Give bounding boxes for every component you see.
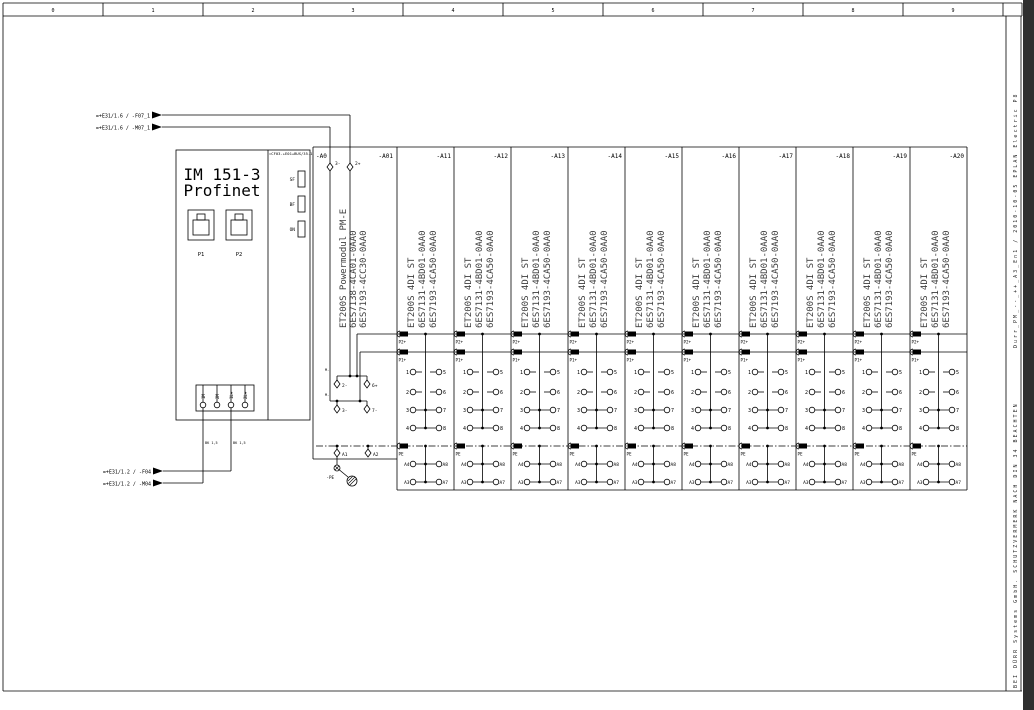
input-terminal-label: 6 bbox=[842, 390, 845, 396]
pm-terminal bbox=[334, 405, 340, 413]
aux-terminal-label: A3 bbox=[575, 480, 581, 486]
module-tag: -A16 bbox=[722, 153, 737, 160]
aux-terminal-label: A8 bbox=[899, 462, 905, 468]
module-tag: -A01 bbox=[379, 153, 394, 160]
input-terminal-label: 8 bbox=[728, 426, 731, 432]
reference-label: =+E31/1.6 / -F07_1 bbox=[96, 114, 150, 120]
input-terminal-label: 2 bbox=[406, 390, 409, 396]
aux-terminal-label: A7 bbox=[557, 480, 563, 486]
ruler-label: 9 bbox=[951, 8, 954, 14]
input-terminal-label: 2 bbox=[919, 390, 922, 396]
module-tag: -A13 bbox=[551, 153, 566, 160]
aux-terminal-label: A3 bbox=[860, 480, 866, 486]
schematic-canvas: 0 1 2 3 4 5 6 7 8 9 Durr_PM_--_++_A3_En1… bbox=[0, 0, 1034, 710]
protection-notice-text: BEI DÜRR Systems GmbH. SCHUTZVERMERK NAC… bbox=[1012, 402, 1019, 688]
aux-terminal-label: A8 bbox=[728, 462, 734, 468]
pm-terminal bbox=[364, 405, 370, 413]
terminal-label: A1 bbox=[342, 452, 348, 458]
input-terminal-label: 3 bbox=[406, 408, 409, 414]
module-tag: -A18 bbox=[836, 153, 851, 160]
bus-label: P1+ bbox=[513, 358, 521, 363]
aux-terminal-label: A7 bbox=[899, 480, 905, 486]
input-terminal-label: 5 bbox=[443, 370, 446, 376]
reference-label: =+E31/1.6 / -M07_1 bbox=[96, 126, 150, 132]
module-description: ET200S 4DI ST bbox=[407, 257, 417, 328]
input-terminal-label: 3 bbox=[805, 408, 808, 414]
led-label: ON bbox=[290, 227, 296, 233]
input-terminal-label: 1 bbox=[577, 370, 580, 376]
terminal-label: 2- bbox=[342, 383, 347, 389]
potential-label: M- bbox=[325, 393, 329, 397]
terminal-label: 2+ bbox=[355, 161, 361, 167]
module-description: ET200S 4DI ST bbox=[635, 257, 645, 328]
module-description: 6ES7131-4BD01-0AA0 bbox=[760, 230, 770, 328]
bus-label: P1+ bbox=[627, 358, 635, 363]
pm-terminal bbox=[334, 449, 340, 457]
bus-label: P2+ bbox=[513, 340, 521, 345]
profinet-port-p1: P1 bbox=[188, 210, 214, 258]
input-terminal-label: 6 bbox=[728, 390, 731, 396]
aux-terminal-label: A7 bbox=[671, 480, 677, 486]
bus-label: P1+ bbox=[456, 358, 464, 363]
module-description: 6ES7193-4CA50-0AA0 bbox=[657, 230, 667, 328]
aux-terminal-label: A4 bbox=[518, 462, 524, 468]
schematic-sheet: 0 1 2 3 4 5 6 7 8 9 Durr_PM_--_++_A3_En1… bbox=[0, 0, 1034, 710]
di-column-11: -A11ET200S 4DI ST6ES7131-4BD01-0AA06ES71… bbox=[397, 147, 451, 490]
terminal-label: 2L+ bbox=[243, 391, 248, 399]
input-terminal-label: 3 bbox=[463, 408, 466, 414]
input-terminal-label: 5 bbox=[557, 370, 560, 376]
bus-label: PE bbox=[627, 452, 633, 457]
terminal-label: 6+ bbox=[372, 383, 378, 389]
plot-stamp-text: Durr_PM_--_++_A3_En1 / 2010-10-05 EPLAN … bbox=[1013, 92, 1019, 348]
bus-label: P2+ bbox=[399, 340, 407, 345]
terminal-label: 7- bbox=[372, 408, 377, 414]
bus-label: PE bbox=[684, 452, 690, 457]
input-terminal-label: 2 bbox=[520, 390, 523, 396]
di-column-20: -A20ET200S 4DI ST6ES7131-4BD01-0AA06ES71… bbox=[910, 147, 964, 490]
input-terminal-label: 4 bbox=[862, 426, 865, 432]
module-description: 6ES7193-4CA50-0AA0 bbox=[942, 230, 952, 328]
input-terminal-label: 2 bbox=[862, 390, 865, 396]
input-terminal-label: 7 bbox=[671, 408, 674, 414]
bus-label: P2+ bbox=[570, 340, 578, 345]
pm-terminal bbox=[334, 380, 340, 388]
module-tag: -A20 bbox=[950, 153, 965, 160]
aux-terminal-label: A4 bbox=[746, 462, 752, 468]
module-description: ET200S 4DI ST bbox=[692, 257, 702, 328]
input-terminal-label: 3 bbox=[919, 408, 922, 414]
bus-label: P1+ bbox=[684, 358, 692, 363]
sheet-frame: 0 1 2 3 4 5 6 7 8 9 bbox=[3, 0, 1034, 710]
module-description: 6ES7193-4CA50-0AA0 bbox=[429, 230, 439, 328]
module-description: 6ES7131-4BD01-0AA0 bbox=[931, 230, 941, 328]
aux-terminal-label: A4 bbox=[632, 462, 638, 468]
aux-terminal-label: A3 bbox=[917, 480, 923, 486]
input-terminal-label: 3 bbox=[862, 408, 865, 414]
module-description: 6ES7193-4CC30-0AA0 bbox=[359, 230, 369, 328]
module-description: ET200S 4DI ST bbox=[920, 257, 930, 328]
bus-label: P2+ bbox=[798, 340, 806, 345]
aux-terminal-label: A4 bbox=[803, 462, 809, 468]
status-leds: SF BF ON bbox=[290, 171, 305, 237]
module-tag: -A14 bbox=[608, 153, 623, 160]
module-description: ET200S 4DI ST bbox=[521, 257, 531, 328]
input-terminal-label: 4 bbox=[520, 426, 523, 432]
input-terminal-label: 3 bbox=[748, 408, 751, 414]
input-terminal-label: 3 bbox=[577, 408, 580, 414]
input-terminal-label: 8 bbox=[557, 426, 560, 432]
bus-label: P2+ bbox=[741, 340, 749, 345]
arrow-icon bbox=[152, 124, 162, 131]
input-terminal-label: 5 bbox=[614, 370, 617, 376]
aux-terminal-label: A7 bbox=[785, 480, 791, 486]
input-terminal-label: 8 bbox=[842, 426, 845, 432]
input-terminal-label: 2 bbox=[577, 390, 580, 396]
module-description: 6ES7193-4CA50-0AA0 bbox=[828, 230, 838, 328]
input-terminal-label: 2 bbox=[634, 390, 637, 396]
aux-terminal-label: A7 bbox=[728, 480, 734, 486]
reference-arrows-bottom: =+E31/1.2 / -F04 =+E31/1.2 / -M04 bbox=[103, 468, 231, 488]
bus-label: PE bbox=[855, 452, 861, 457]
module-tag: -A15 bbox=[665, 153, 680, 160]
bus-reference-label: =CF03-+E01+BUS/35.1 bbox=[269, 151, 313, 156]
arrow-icon bbox=[152, 112, 162, 119]
ruler-label: 4 bbox=[451, 8, 454, 14]
input-terminal-label: 5 bbox=[956, 370, 959, 376]
power-terminal-block: 1M 2M 1L+ 2L+ bbox=[196, 385, 254, 411]
input-terminal-label: 3 bbox=[520, 408, 523, 414]
led-label: BF bbox=[290, 202, 296, 208]
input-terminal-label: 1 bbox=[520, 370, 523, 376]
module-description: 6ES7193-4CA50-0AA0 bbox=[600, 230, 610, 328]
input-terminal-label: 4 bbox=[691, 426, 694, 432]
input-terminal-label: 5 bbox=[899, 370, 902, 376]
ruler-label: 6 bbox=[651, 8, 654, 14]
input-terminal-label: 6 bbox=[785, 390, 788, 396]
im151-module: IM 151-3 Profinet P1 P2 =CF03-+E01+BUS/3… bbox=[176, 150, 313, 483]
di-column-19: -A19ET200S 4DI ST6ES7131-4BD01-0AA06ES71… bbox=[853, 147, 907, 490]
module-description: 6ES7131-4BD01-0AA0 bbox=[418, 230, 428, 328]
input-terminal-label: 2 bbox=[691, 390, 694, 396]
terminal-label: 3- bbox=[342, 408, 347, 414]
bus-label: PE bbox=[399, 452, 405, 457]
input-terminal-label: 6 bbox=[443, 390, 446, 396]
module-tag: -A12 bbox=[494, 153, 509, 160]
bus-label: PE bbox=[741, 452, 747, 457]
im-title: Profinet bbox=[183, 181, 260, 200]
input-terminal-label: 4 bbox=[406, 426, 409, 432]
ruler-label: 1 bbox=[151, 8, 154, 14]
input-terminal-label: 3 bbox=[634, 408, 637, 414]
pm-terminal bbox=[364, 380, 370, 388]
aux-terminal-label: A8 bbox=[671, 462, 677, 468]
terminal-label: 1L+ bbox=[229, 391, 234, 399]
input-terminal-label: 5 bbox=[785, 370, 788, 376]
aux-terminal-label: A7 bbox=[500, 480, 506, 486]
aux-terminal-label: A3 bbox=[404, 480, 410, 486]
di-column-17: -A17ET200S 4DI ST6ES7131-4BD01-0AA06ES71… bbox=[739, 147, 793, 490]
module-description: ET200S 4DI ST bbox=[578, 257, 588, 328]
aux-terminal-label: A7 bbox=[956, 480, 962, 486]
di-column-16: -A16ET200S 4DI ST6ES7131-4BD01-0AA06ES71… bbox=[682, 147, 736, 490]
input-terminal-label: 8 bbox=[500, 426, 503, 432]
input-terminal-label: 5 bbox=[842, 370, 845, 376]
bus-label: P1+ bbox=[399, 358, 407, 363]
input-terminal-label: 1 bbox=[634, 370, 637, 376]
input-terminal-label: 4 bbox=[634, 426, 637, 432]
input-terminal-label: 5 bbox=[671, 370, 674, 376]
module-description: 6ES7138-4CA01-0AA0 bbox=[349, 230, 359, 328]
di-column-15: -A15ET200S 4DI ST6ES7131-4BD01-0AA06ES71… bbox=[625, 147, 679, 490]
reference-label: =+E31/1.2 / -M04 bbox=[103, 482, 151, 488]
module-description: ET200S 4DI ST bbox=[749, 257, 759, 328]
input-terminal-label: 8 bbox=[956, 426, 959, 432]
module-tag: -A17 bbox=[779, 153, 794, 160]
di-column-14: -A14ET200S 4DI ST6ES7131-4BD01-0AA06ES71… bbox=[568, 147, 622, 490]
arrow-icon bbox=[153, 480, 163, 487]
pm-terminal bbox=[365, 449, 371, 457]
potential-label: M- bbox=[325, 368, 329, 372]
input-terminal-label: 1 bbox=[748, 370, 751, 376]
di-column-18: -A18ET200S 4DI ST6ES7131-4BD01-0AA06ES71… bbox=[796, 147, 850, 490]
input-terminal-label: 4 bbox=[805, 426, 808, 432]
input-terminal-label: 1 bbox=[805, 370, 808, 376]
bus-label: P1+ bbox=[570, 358, 578, 363]
input-terminal-label: 7 bbox=[614, 408, 617, 414]
aux-terminal-label: A8 bbox=[500, 462, 506, 468]
ruler-label: 5 bbox=[551, 8, 554, 14]
module-description: 6ES7131-4BD01-0AA0 bbox=[703, 230, 713, 328]
bus-label: P1+ bbox=[912, 358, 920, 363]
aux-terminal-label: A8 bbox=[557, 462, 563, 468]
module-description: ET200S 4DI ST bbox=[806, 257, 816, 328]
input-terminal-label: 3 bbox=[691, 408, 694, 414]
bus-label: P2+ bbox=[912, 340, 920, 345]
module-tag: -A19 bbox=[893, 153, 908, 160]
aux-terminal-label: A3 bbox=[803, 480, 809, 486]
aux-terminal-label: A8 bbox=[614, 462, 620, 468]
arrow-icon bbox=[153, 468, 163, 475]
aux-terminal-label: A3 bbox=[746, 480, 752, 486]
aux-terminal-label: A4 bbox=[404, 462, 410, 468]
module-description: ET200S 4DI ST bbox=[464, 257, 474, 328]
di-column-13: -A13ET200S 4DI ST6ES7131-4BD01-0AA06ES71… bbox=[511, 147, 565, 490]
aux-terminal-label: A3 bbox=[689, 480, 695, 486]
input-terminal-label: 8 bbox=[614, 426, 617, 432]
input-terminal-label: 6 bbox=[956, 390, 959, 396]
module-description: 6ES7193-4CA50-0AA0 bbox=[885, 230, 895, 328]
terminal-label: 2M bbox=[215, 394, 220, 399]
profinet-port-p2: P2 bbox=[226, 210, 252, 258]
input-terminal-label: 6 bbox=[500, 390, 503, 396]
aux-terminal-label: A7 bbox=[842, 480, 848, 486]
module-description: 6ES7193-4CA50-0AA0 bbox=[714, 230, 724, 328]
input-terminal-label: 7 bbox=[557, 408, 560, 414]
input-terminal-label: 4 bbox=[919, 426, 922, 432]
interruption-terminal bbox=[347, 163, 353, 171]
aux-terminal-label: A4 bbox=[917, 462, 923, 468]
terminal-label: A2 bbox=[373, 452, 379, 458]
bus-label: P2+ bbox=[456, 340, 464, 345]
input-terminal-label: 5 bbox=[728, 370, 731, 376]
input-terminal-label: 6 bbox=[671, 390, 674, 396]
aux-terminal-label: A3 bbox=[518, 480, 524, 486]
interruption-terminal bbox=[327, 163, 333, 171]
di-columns: -A11ET200S 4DI ST6ES7131-4BD01-0AA06ES71… bbox=[397, 147, 964, 490]
bus-label: PE bbox=[798, 452, 804, 457]
module-description: 6ES7131-4BD01-0AA0 bbox=[532, 230, 542, 328]
bus-label: PE bbox=[513, 452, 519, 457]
input-terminal-label: 7 bbox=[956, 408, 959, 414]
input-terminal-label: 6 bbox=[899, 390, 902, 396]
module-description: 6ES7193-4CA50-0AA0 bbox=[543, 230, 553, 328]
bus-label: PE bbox=[912, 452, 918, 457]
earth-ground-symbol: -PE bbox=[326, 457, 357, 486]
ruler-label: 3 bbox=[351, 8, 354, 14]
bus-label: PE bbox=[456, 452, 462, 457]
module-description: 6ES7131-4BD01-0AA0 bbox=[475, 230, 485, 328]
input-terminal-label: 1 bbox=[862, 370, 865, 376]
module-description: ET200S Powermodul PM-E bbox=[339, 209, 349, 328]
bus-label: P1+ bbox=[855, 358, 863, 363]
input-terminal-label: 7 bbox=[728, 408, 731, 414]
aux-terminal-label: A8 bbox=[956, 462, 962, 468]
input-terminal-label: 8 bbox=[785, 426, 788, 432]
ruler-label: 8 bbox=[851, 8, 854, 14]
input-terminal-label: 8 bbox=[671, 426, 674, 432]
bus-label: P2+ bbox=[855, 340, 863, 345]
port-label: P2 bbox=[236, 252, 243, 258]
aux-terminal-label: A4 bbox=[575, 462, 581, 468]
input-terminal-label: 5 bbox=[500, 370, 503, 376]
input-terminal-label: 7 bbox=[899, 408, 902, 414]
input-terminal-label: 6 bbox=[614, 390, 617, 396]
aux-terminal-label: A7 bbox=[614, 480, 620, 486]
module-description: 6ES7131-4BD01-0AA0 bbox=[817, 230, 827, 328]
module-description: 6ES7131-4BD01-0AA0 bbox=[589, 230, 599, 328]
reference-label: =+E31/1.2 / -F04 bbox=[103, 470, 151, 476]
input-terminal-label: 6 bbox=[557, 390, 560, 396]
input-terminal-label: 7 bbox=[443, 408, 446, 414]
input-terminal-label: 2 bbox=[748, 390, 751, 396]
input-terminal-label: 1 bbox=[691, 370, 694, 376]
wire-label: BK 1,5 bbox=[233, 441, 246, 445]
aux-terminal-label: A7 bbox=[443, 480, 449, 486]
title-block-sidebar: Durr_PM_--_++_A3_En1 / 2010-10-05 EPLAN … bbox=[1006, 16, 1021, 691]
module-description: 6ES7131-4BD01-0AA0 bbox=[874, 230, 884, 328]
aux-terminal-label: A4 bbox=[689, 462, 695, 468]
module-tag: -A0 bbox=[316, 153, 327, 160]
wire-label: BK 1,5 bbox=[205, 441, 218, 445]
aux-terminal-label: A8 bbox=[785, 462, 791, 468]
aux-terminal-label: A8 bbox=[443, 462, 449, 468]
ruler-label: 0 bbox=[51, 8, 54, 14]
bus-label: P1+ bbox=[741, 358, 749, 363]
bus-label: P2+ bbox=[627, 340, 635, 345]
bus-label: PE bbox=[570, 452, 576, 457]
input-terminal-label: 4 bbox=[463, 426, 466, 432]
input-terminal-label: 2 bbox=[805, 390, 808, 396]
input-terminal-label: 2 bbox=[463, 390, 466, 396]
module-description: ET200S 4DI ST bbox=[863, 257, 873, 328]
module-description: 6ES7193-4CA50-0AA0 bbox=[486, 230, 496, 328]
di-column-12: -A12ET200S 4DI ST6ES7131-4BD01-0AA06ES71… bbox=[454, 147, 508, 490]
input-terminal-label: 8 bbox=[899, 426, 902, 432]
page-edge-bar bbox=[1023, 0, 1034, 710]
terminal-label: 1M bbox=[201, 394, 206, 399]
input-terminal-label: 8 bbox=[443, 426, 446, 432]
input-terminal-label: 1 bbox=[406, 370, 409, 376]
input-terminal-label: 7 bbox=[500, 408, 503, 414]
aux-terminal-label: A3 bbox=[632, 480, 638, 486]
led-label: SF bbox=[290, 177, 296, 183]
pe-label: -PE bbox=[326, 475, 334, 480]
input-terminal-label: 4 bbox=[577, 426, 580, 432]
input-terminal-label: 1 bbox=[463, 370, 466, 376]
ruler-label: 7 bbox=[751, 8, 754, 14]
bus-label: P2+ bbox=[684, 340, 692, 345]
ruler-label: 2 bbox=[251, 8, 254, 14]
aux-terminal-label: A8 bbox=[842, 462, 848, 468]
power-module-a01: -A0 -A01 3- 2+ ET200S Powermodul PM-E 6E… bbox=[316, 153, 393, 486]
input-terminal-label: 7 bbox=[785, 408, 788, 414]
input-terminal-label: 4 bbox=[748, 426, 751, 432]
terminal-label: 3- bbox=[335, 161, 340, 167]
module-tag: -A11 bbox=[437, 153, 452, 160]
port-label: P1 bbox=[198, 252, 205, 258]
module-description: 6ES7193-4CA50-0AA0 bbox=[771, 230, 781, 328]
aux-terminal-label: A4 bbox=[860, 462, 866, 468]
input-terminal-label: 7 bbox=[842, 408, 845, 414]
aux-terminal-label: A3 bbox=[461, 480, 467, 486]
input-terminal-label: 1 bbox=[919, 370, 922, 376]
aux-terminal-label: A4 bbox=[461, 462, 467, 468]
bus-label: P1+ bbox=[798, 358, 806, 363]
module-description: 6ES7131-4BD01-0AA0 bbox=[646, 230, 656, 328]
